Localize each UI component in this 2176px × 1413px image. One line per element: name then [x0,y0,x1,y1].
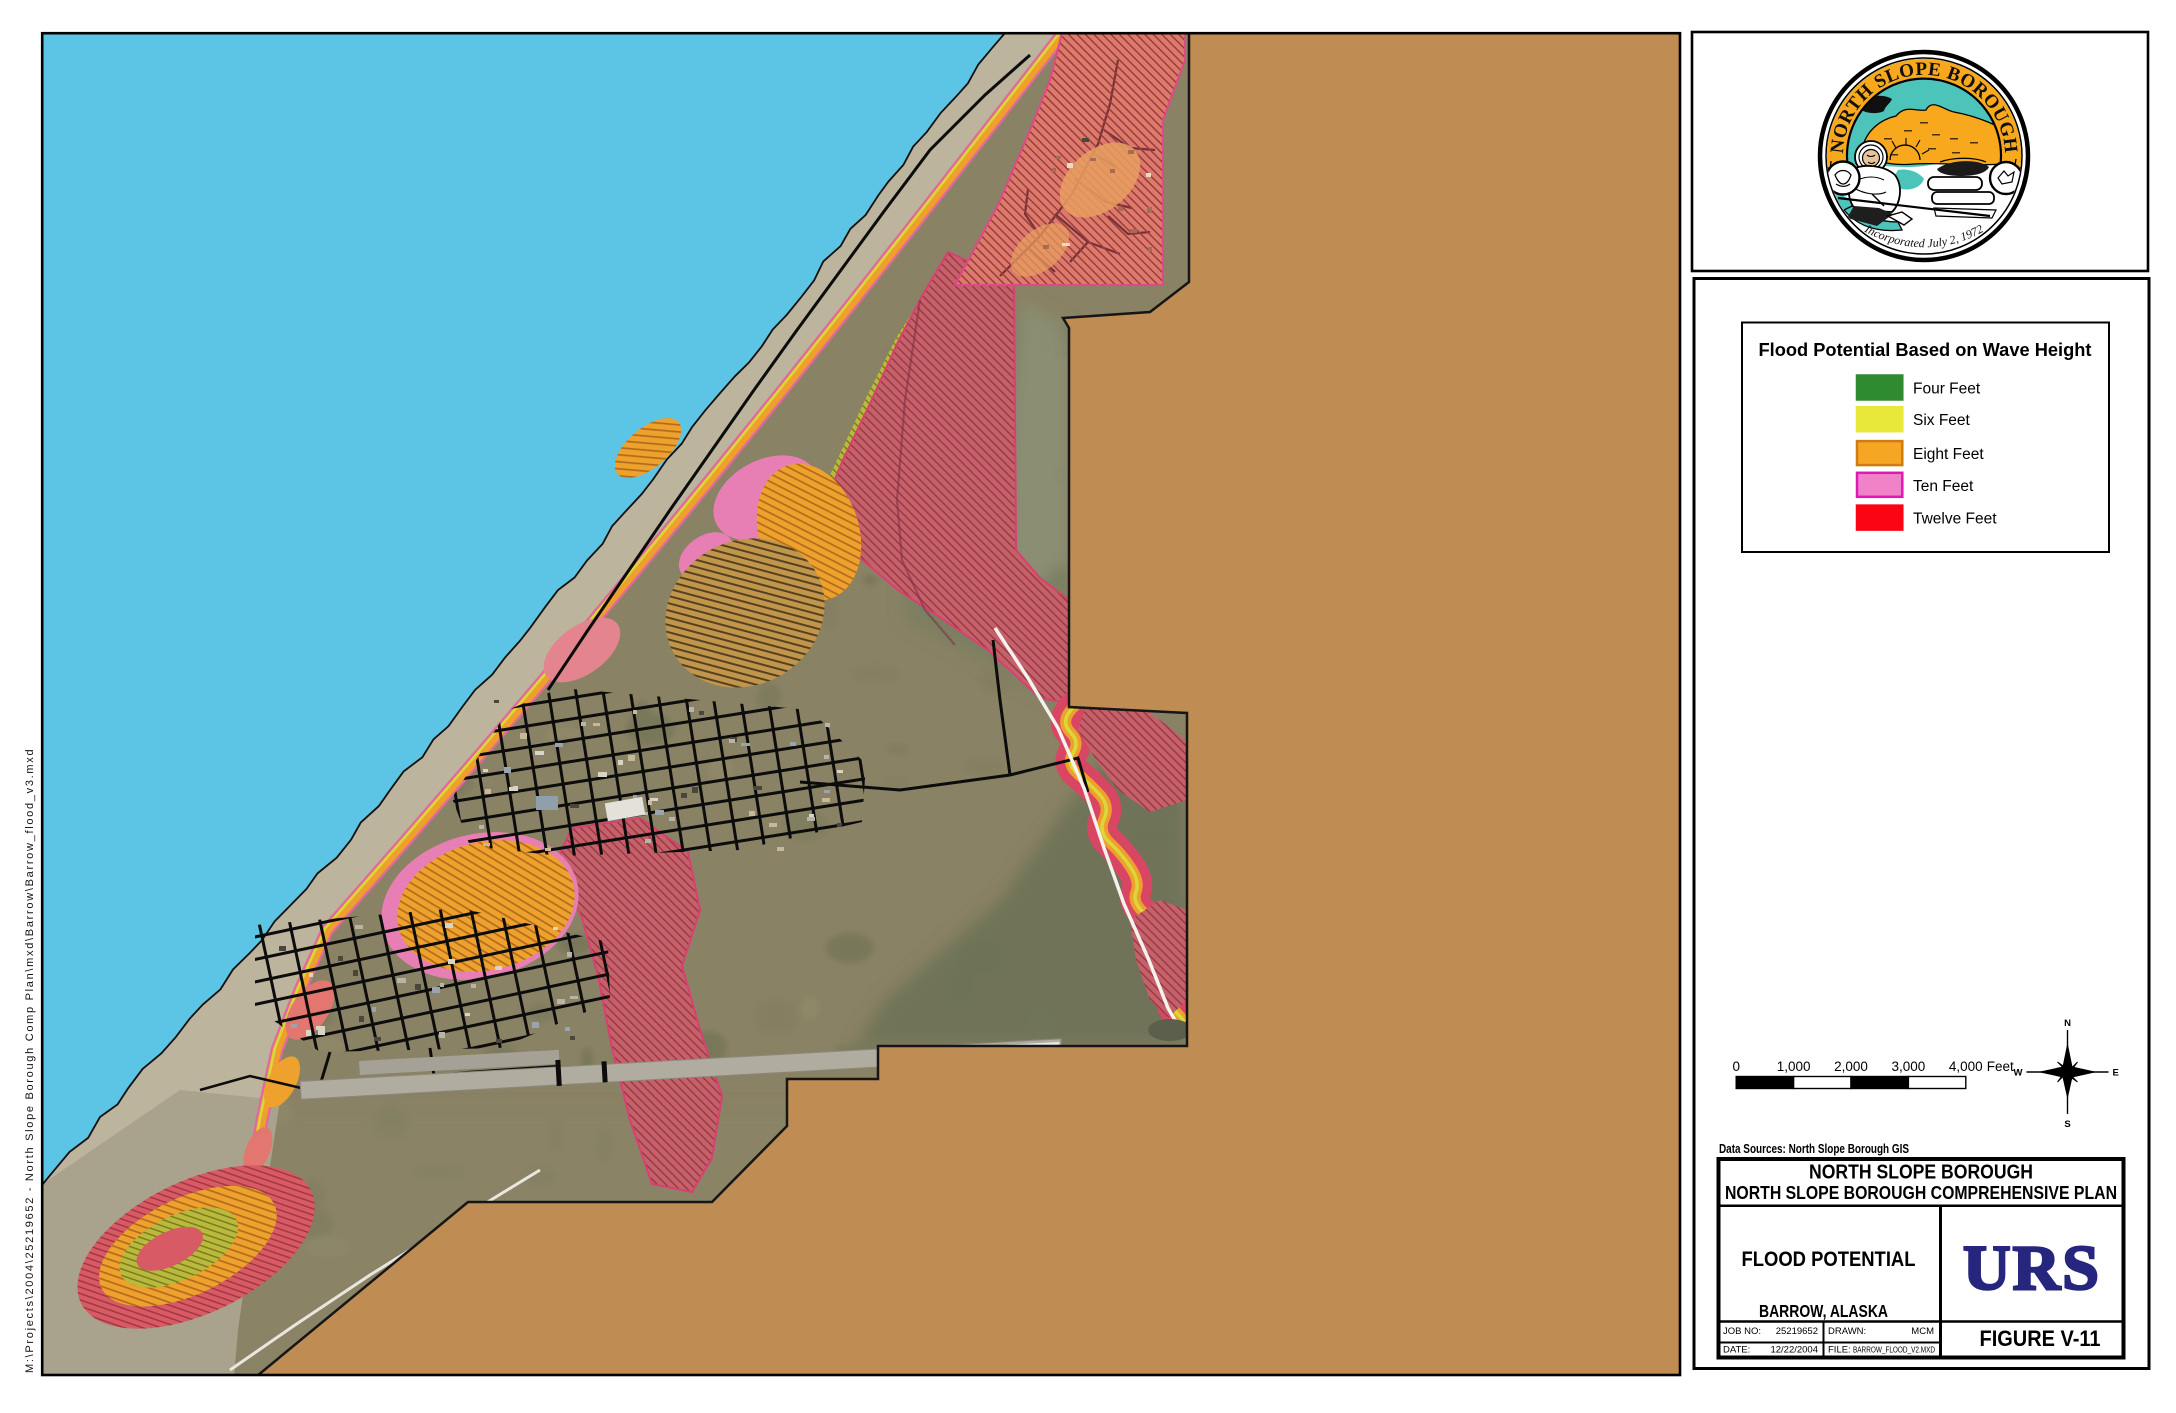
svg-text:MCM: MCM [1911,1326,1934,1337]
svg-text:E: E [2113,1068,2119,1079]
svg-text:DRAWN:: DRAWN: [1828,1326,1866,1337]
svg-text:4,000: 4,000 [1949,1059,1983,1074]
svg-text:3,000: 3,000 [1892,1059,1926,1074]
svg-text:2,000: 2,000 [1834,1059,1868,1074]
svg-text:25219652: 25219652 [1776,1326,1818,1337]
svg-text:1,000: 1,000 [1777,1059,1811,1074]
svg-text:DATE:: DATE: [1723,1345,1750,1356]
svg-text:Ten Feet: Ten Feet [1913,478,1974,495]
svg-text:0: 0 [1732,1059,1740,1074]
svg-text:N: N [2064,1018,2071,1029]
svg-text:FIGURE V-11: FIGURE V-11 [1980,1326,2101,1351]
svg-text:Twelve Feet: Twelve Feet [1913,511,1997,528]
svg-text:12/22/2004: 12/22/2004 [1770,1345,1818,1356]
svg-text:M:\Projects\2004\25219652 - No: M:\Projects\2004\25219652 - North Slope … [24,748,36,1373]
svg-text:W: W [2014,1068,2023,1079]
svg-text:JOB NO:: JOB NO: [1723,1326,1761,1337]
svg-text:NORTH SLOPE BOROUGH COMPREHENS: NORTH SLOPE BOROUGH COMPREHENSIVE PLAN [1725,1183,2117,1203]
svg-text:Feet: Feet [1987,1059,2014,1074]
svg-text:Data Sources: North Slope Boro: Data Sources: North Slope Borough GIS [1719,1142,1909,1156]
svg-text:URS: URS [1963,1232,2101,1303]
svg-text:FLOOD POTENTIAL: FLOOD POTENTIAL [1742,1248,1916,1271]
svg-text:S: S [2064,1119,2070,1130]
svg-text:BARROW_FLOOD_V2.MXD: BARROW_FLOOD_V2.MXD [1853,1345,1935,1355]
svg-text:NORTH SLOPE BOROUGH: NORTH SLOPE BOROUGH [1809,1161,2033,1184]
svg-text:Eight Feet: Eight Feet [1913,446,1984,463]
svg-text:Six Feet: Six Feet [1913,412,1971,429]
svg-text:FILE:: FILE: [1828,1345,1851,1356]
svg-text:Flood Potential Based on Wave: Flood Potential Based on Wave Height [1759,339,2092,360]
svg-text:Four Feet: Four Feet [1913,381,1981,398]
svg-text:BARROW, ALASKA: BARROW, ALASKA [1759,1301,1888,1321]
